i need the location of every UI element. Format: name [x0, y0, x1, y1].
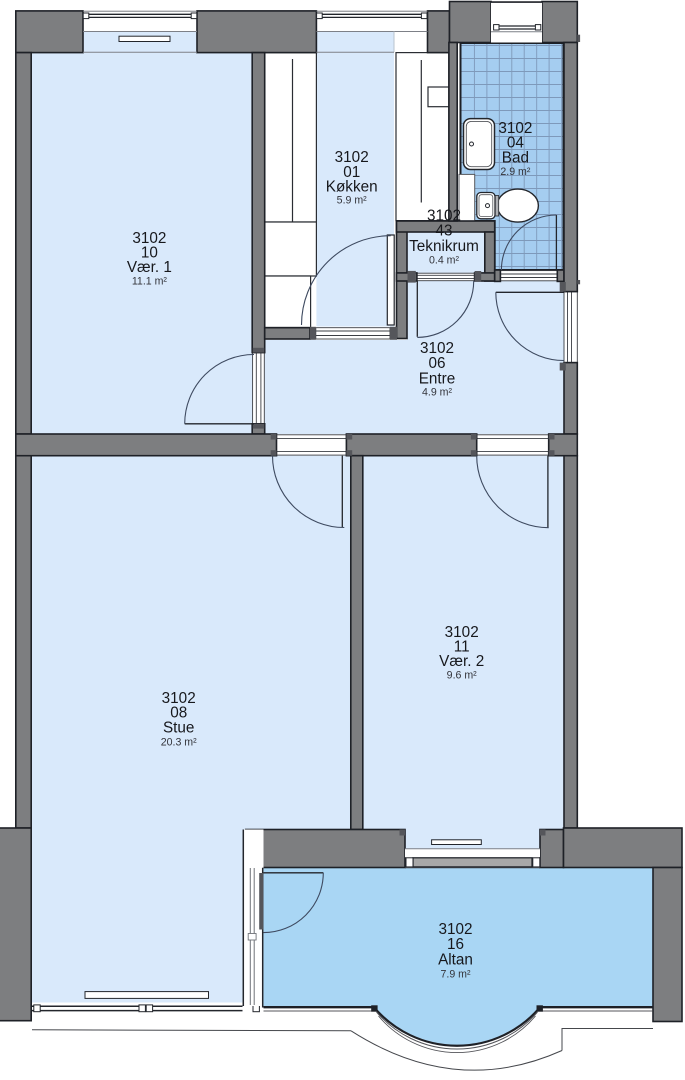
svg-text:Teknikrum: Teknikrum	[409, 238, 479, 255]
svg-text:Entre: Entre	[419, 371, 456, 388]
svg-text:Vær. 2: Vær. 2	[439, 653, 484, 670]
svg-text:9.6 m²: 9.6 m²	[447, 670, 477, 682]
svg-text:2.9 m²: 2.9 m²	[500, 166, 530, 178]
svg-text:Altan: Altan	[438, 952, 473, 969]
svg-text:Køkken: Køkken	[326, 179, 378, 196]
svg-text:0.4 m²: 0.4 m²	[429, 254, 459, 266]
svg-text:11.1 m²: 11.1 m²	[132, 275, 168, 287]
svg-text:5.9 m²: 5.9 m²	[337, 194, 367, 206]
svg-text:Bad: Bad	[502, 150, 529, 167]
svg-text:4.9 m²: 4.9 m²	[422, 387, 452, 399]
svg-text:20.3 m²: 20.3 m²	[161, 737, 197, 749]
svg-text:43: 43	[435, 223, 452, 240]
svg-text:Stue: Stue	[163, 720, 194, 737]
svg-text:7.9 m²: 7.9 m²	[440, 968, 470, 980]
svg-text:Vær. 1: Vær. 1	[127, 259, 172, 276]
svg-text:16: 16	[447, 936, 464, 953]
